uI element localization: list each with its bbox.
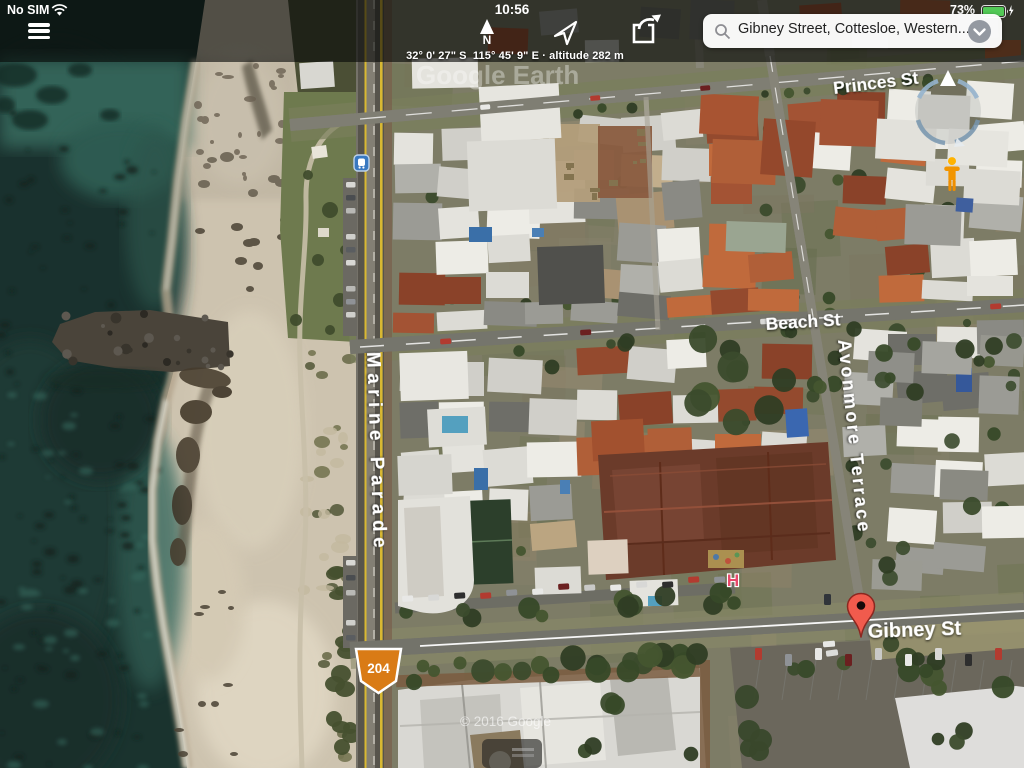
- svg-text:Gibney St: Gibney St: [867, 618, 961, 643]
- svg-text:N: N: [483, 33, 492, 45]
- svg-text:© 2016 Google: © 2016 Google: [460, 714, 551, 729]
- svg-text:204: 204: [367, 661, 390, 676]
- svg-text:H: H: [727, 571, 739, 590]
- svg-text:Google Earth: Google Earth: [416, 60, 579, 90]
